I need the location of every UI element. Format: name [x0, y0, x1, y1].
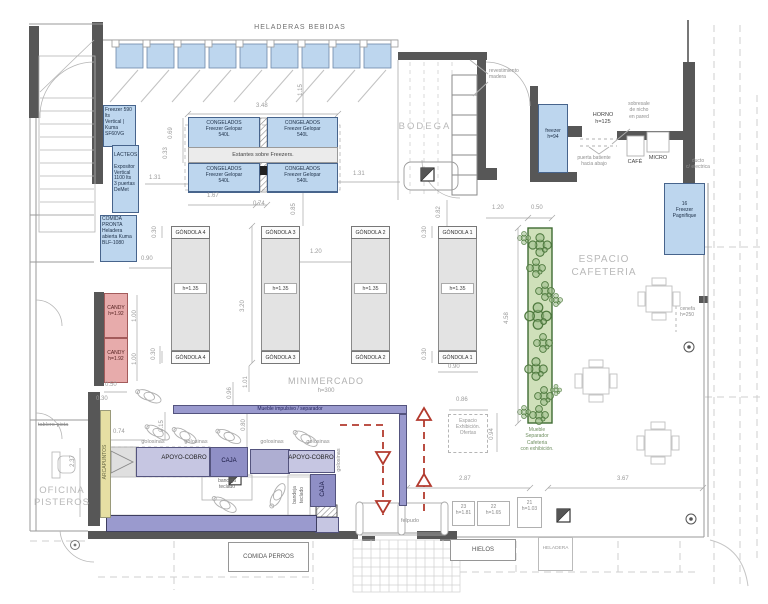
dim-1-67: 1.67 [207, 193, 219, 199]
entrance [353, 502, 460, 592]
note-tablero-pista: tablero-pista [38, 422, 88, 429]
expositor-label: Expositor Vertical 1100 lts 3 puertas De… [114, 164, 135, 194]
apoyo-cobro-label-1: APOYO-COBRO [158, 455, 210, 461]
unit-23: 23 h=1.81 [452, 501, 475, 526]
dim-0-90-g1: 0.90 [448, 364, 460, 370]
dim-0-50-separador: 0.50 [531, 205, 543, 211]
micro-label: MICRO [644, 155, 672, 162]
comida-pronta-heladera: COMIDA PRONTA Heladera abierta Kuma BLF-… [100, 215, 137, 262]
gondola-1-label-bottom: GÓNDOLA 1 [438, 351, 477, 364]
gondola-3-label-top: GÓNDOLA 3 [261, 226, 300, 239]
caja-2-label: CAJA [320, 474, 326, 504]
dim-0-96: 0.96 [227, 382, 235, 404]
gondola-3-body [261, 238, 300, 351]
staircase [39, 40, 95, 232]
unit-22: 22 h=1.65 [477, 501, 510, 526]
left-rooms [36, 300, 94, 562]
dim-0-80: 0.80 [241, 414, 249, 436]
gondola-1-body [438, 238, 477, 351]
dim-1-00-candy1: 1.00 [132, 305, 140, 327]
dim-1-15: 1.15 [298, 79, 306, 101]
dim-0-30-g1-bottom: 0.30 [422, 343, 430, 365]
comida-perros-box: COMIDA PERROS [228, 542, 309, 572]
apoyo-cobro-box-1 [136, 447, 210, 477]
freezer-590-kuma: Freezer 590 lts Vertical | Kuma SF60VG [103, 105, 136, 147]
caja-1-label: CAJA [210, 458, 248, 464]
bottom-counter [106, 515, 317, 532]
dim-1-31-right: 1.31 [353, 171, 365, 177]
golosinas-label-4: golosinas [303, 439, 333, 446]
dim-0-30-g1-top: 0.30 [422, 221, 430, 243]
congelados-box-3: CONGELADOS Freezer Gelopar 540L [188, 163, 260, 193]
congelados-box-2: CONGELADOS Freezer Gelopar 540L [267, 117, 338, 148]
gondola-1-height: h=1.35 [441, 283, 474, 294]
dim-1-20-separador: 1.20 [492, 205, 504, 211]
dim-0-30-g4-bottom: 0.30 [151, 343, 159, 365]
freezer-pagnifique: 16 Freezer Pagnifique [664, 183, 705, 255]
floor-plan: HELADERAS BEBIDAS BODEGA MINIMERCADO h=3… [0, 0, 768, 604]
room-minimercado: MINIMERCADO [286, 376, 366, 386]
room-espacio-cafeteria: ESPACIO CAFETERIA [564, 253, 644, 279]
dim-0-30-wall: 0.30 [96, 396, 108, 402]
dim-3-20: 3.20 [240, 295, 248, 317]
dim-0-85: 0.85 [291, 198, 299, 220]
bandeja-teclado-2: bandeja teclado [292, 477, 306, 513]
gondola-2-body [351, 238, 390, 351]
dim-3-67: 3.67 [617, 476, 629, 482]
note-revestimiento: revestimiento madera [489, 68, 535, 81]
golosinas-label-2: golosinas [181, 439, 211, 446]
minimercado-height: h=300 [286, 388, 366, 394]
apoyo-cobro-box-2 [288, 450, 335, 473]
gondola-4-label-top: GÓNDOLA 4 [171, 226, 210, 239]
freezer-h94: freezer h=94 [538, 104, 568, 173]
dim-2-37: 2.37 [70, 450, 78, 472]
dim-1-00-candy2: 1.00 [132, 348, 140, 370]
dim-0-74-congelados: 0.74 [253, 201, 265, 207]
candy-box-1: CANDY h=1.92 [104, 293, 128, 338]
dim-0-69: 0.69 [168, 122, 176, 144]
dim-0-74-checkout: 0.74 [113, 429, 125, 435]
cafeteria-tables [575, 278, 680, 464]
note-horno: HORNO h=125 [587, 112, 619, 126]
dim-4-58: 4.58 [504, 307, 512, 329]
gondola-4-label-bottom: GÓNDOLA 4 [171, 351, 210, 364]
dim-0-94: 0.94 [489, 423, 497, 445]
gondola-1-label-top: GÓNDOLA 1 [438, 226, 477, 239]
gondola-2-label-bottom: GÓNDOLA 2 [351, 351, 390, 364]
gondola-4-height: h=1.35 [174, 283, 207, 294]
gondola-4-body [171, 238, 210, 351]
dim-3-48: 3.48 [256, 103, 268, 109]
hielos-box: HIELOS [450, 539, 516, 561]
dim-0-50-candy: 0.50 [105, 382, 117, 388]
separador-cafeteria-label: Mueble Separador Cafeteria con exhibició… [504, 427, 570, 452]
note-cenefa: cenefa h=250 [680, 306, 708, 319]
dim-1-20-aisle: 1.20 [310, 249, 322, 255]
note-sobresale: sobresale de nicho en pared [621, 101, 657, 120]
dim-0-82: 0.82 [436, 201, 444, 223]
gondola-3-height: h=1.35 [264, 283, 297, 294]
dim-2-87: 2.87 [459, 476, 471, 482]
dim-1-01: 1.01 [243, 371, 251, 393]
arcapuntos-label: ARCAPUNTOS [102, 430, 108, 494]
caja-2-side-shelf [315, 517, 339, 533]
gondola-rails [189, 240, 459, 350]
espacio-exhibicion-box: Espacio Exhibición. Ofertas [448, 414, 488, 453]
cafe-label: CAFÉ [624, 159, 646, 166]
apoyo-cobro-label-2: APOYO-COBRO [286, 455, 336, 461]
bandeja-teclado-1: bandeja teclado [202, 478, 252, 491]
dim-0-33: 0.33 [163, 142, 171, 164]
dim-0-90-g4: 0.90 [141, 256, 153, 262]
congelados-box-1: CONGELADOS Freezer Gelopar 540L [188, 117, 260, 148]
dim-1-31-left: 1.31 [149, 175, 161, 181]
gondola-2-height: h=1.35 [354, 283, 387, 294]
room-oficina-pisteros: OFICINA PISTEROS [24, 485, 100, 510]
heladera-box: HELADERA [538, 537, 573, 571]
golosinas-label-1: golosinas [138, 439, 168, 446]
dim-0-86: 0.86 [456, 397, 468, 403]
estantes-band: Estantes sobre Freezers. [188, 147, 338, 163]
room-bodega: BODEGA [392, 121, 458, 132]
felpudo-label: felpudo [390, 518, 430, 525]
unit-21: 21 h=1.03 [517, 497, 542, 528]
gondola-3-label-bottom: GÓNDOLA 3 [261, 351, 300, 364]
note-puerta-batiente: puerta batiente hacia abajo [568, 155, 620, 168]
lacteos-label: LACTEOS [114, 152, 137, 158]
circulation-arrows [340, 408, 431, 515]
congelados-box-4: CONGELADOS Freezer Gelopar 540L [267, 163, 338, 193]
candy-box-2: CANDY h=1.92 [104, 338, 128, 383]
note-ducto: ducto c/ electrica [679, 158, 717, 171]
apoyo-cobro-mid-2 [250, 449, 290, 474]
mueble-impulsivo-label: Mueble impulsivo / separador [180, 406, 400, 412]
lacteos-expositor: LACTEOS Expositor Vertical 1100 lts 3 pu… [112, 145, 139, 213]
title-heladeras-bebidas: HELADERAS BEBIDAS [240, 24, 360, 31]
heladeras-row [110, 40, 398, 102]
golosinas-label-vertical: golosinas [336, 442, 342, 478]
dim-0-30-g4-top: 0.30 [152, 221, 160, 243]
plant-separator [517, 228, 562, 424]
mueble-impulsivo-strip-vertical [399, 414, 407, 506]
golosinas-label-3: golosinas [257, 439, 287, 446]
dim-0-15: 0.15 [159, 415, 167, 437]
gondola-2-label-top: GÓNDOLA 2 [351, 226, 390, 239]
